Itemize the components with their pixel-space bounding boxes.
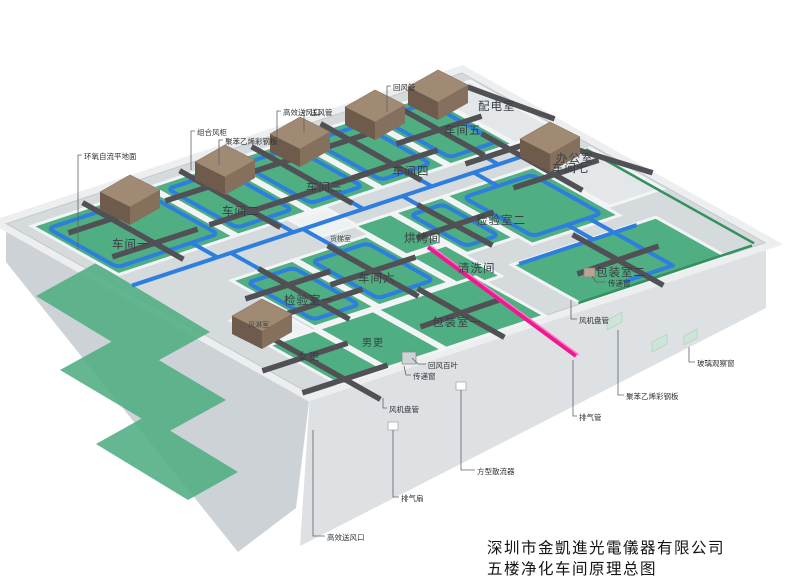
pass-window-box — [402, 352, 416, 364]
diffuser-box — [456, 382, 466, 390]
exhaust-fan-box — [388, 422, 398, 430]
cleanroom-principle-diagram: 车间一 车间二 车间三 车间四 车间五 车间六 车间七 检验室一 检验室二 包装… — [0, 0, 800, 587]
isometric-building-art — [0, 0, 800, 587]
pass-window-box — [584, 268, 595, 277]
